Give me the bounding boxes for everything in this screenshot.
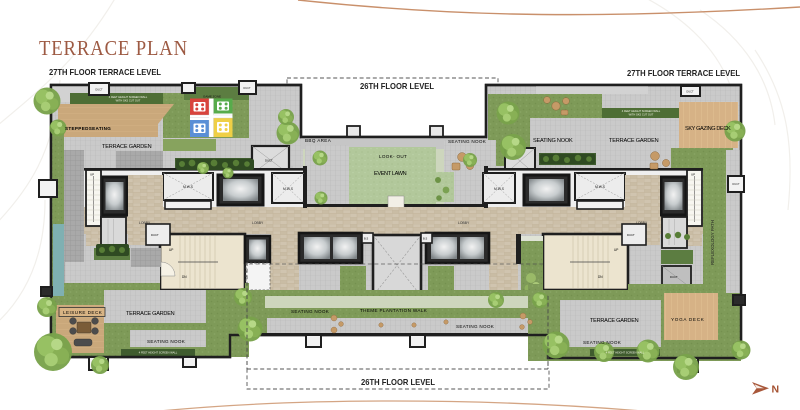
svg-text:27TH FLOOR TERRACE LEVEL: 27TH FLOOR TERRACE LEVEL: [627, 69, 740, 78]
svg-text:N: N: [772, 384, 780, 396]
svg-text:SEATING NOOK: SEATING NOOK: [456, 324, 495, 329]
svg-text:26TH FLOOR LEVEL: 26TH FLOOR LEVEL: [361, 377, 435, 387]
svg-text:LOBBY: LOBBY: [139, 221, 151, 225]
svg-text:SEATING NOOK: SEATING NOOK: [583, 340, 622, 345]
svg-text:TERRACE GARDEN: TERRACE GARDEN: [126, 311, 175, 317]
svg-text:M.W.S: M.W.S: [494, 187, 505, 191]
svg-text:YOGA DECK: YOGA DECK: [671, 317, 705, 322]
svg-text:LOBBY: LOBBY: [636, 221, 648, 225]
svg-text:REFLEXOLOGY PATH: REFLEXOLOGY PATH: [710, 220, 715, 265]
svg-text:26TH FLOOR LEVEL: 26TH FLOOR LEVEL: [360, 81, 434, 91]
svg-text:DUCT: DUCT: [732, 182, 740, 186]
svg-text:TERRACE PLAN: TERRACE PLAN: [39, 36, 188, 60]
svg-text:27TH FLOOR TERRACE LEVEL: 27TH FLOOR TERRACE LEVEL: [49, 68, 161, 77]
svg-text:STEPPEDSEATING: STEPPEDSEATING: [65, 126, 111, 131]
svg-text:B.S: B.S: [423, 237, 427, 241]
svg-text:DUCT: DUCT: [627, 233, 635, 237]
svg-text:M.W.S: M.W.S: [183, 185, 194, 189]
svg-text:4 FEET HEIGHT SCREEN WALL: 4 FEET HEIGHT SCREEN WALL: [622, 109, 661, 113]
svg-text:TERRACE GARDEN: TERRACE GARDEN: [102, 144, 152, 150]
svg-text:DN: DN: [182, 275, 187, 279]
svg-text:4 FEET HEIGHT SCREEN WALL: 4 FEET HEIGHT SCREEN WALL: [109, 95, 148, 99]
svg-text:SEATING NOOK: SEATING NOOK: [533, 138, 573, 144]
svg-text:B.S: B.S: [364, 237, 368, 241]
svg-text:WITH SKS CUT OUT: WITH SKS CUT OUT: [116, 99, 141, 103]
svg-text:M.W.S: M.W.S: [283, 187, 294, 191]
svg-text:DUCT: DUCT: [95, 88, 103, 92]
svg-text:DUCT: DUCT: [686, 90, 694, 94]
svg-text:SEATING NOOK: SEATING NOOK: [448, 139, 487, 144]
svg-text:UP: UP: [614, 248, 618, 252]
svg-text:M.W.S: M.W.S: [595, 185, 606, 189]
svg-text:UP: UP: [691, 173, 695, 177]
svg-text:SEATING NOOK: SEATING NOOK: [291, 309, 330, 314]
svg-text:TERRACE GARDEN: TERRACE GARDEN: [590, 318, 639, 324]
svg-text:DUCT: DUCT: [243, 86, 251, 90]
svg-text:LEISURE DECK: LEISURE DECK: [63, 310, 103, 315]
svg-text:SEATING NOOK: SEATING NOOK: [147, 339, 186, 344]
svg-text:EVENT LAWN: EVENT LAWN: [374, 171, 407, 177]
svg-text:UP: UP: [169, 248, 173, 252]
svg-text:DUCT: DUCT: [265, 159, 273, 163]
svg-text:THEME PLANTATION WALK: THEME PLANTATION WALK: [360, 308, 428, 313]
svg-text:DUCT: DUCT: [151, 233, 159, 237]
svg-text:LOBBY: LOBBY: [252, 221, 264, 225]
svg-text:GAME ZONE: GAME ZONE: [203, 95, 221, 99]
svg-text:DN: DN: [598, 275, 603, 279]
svg-text:4 FEET HEIGHT SCREEN WALL: 4 FEET HEIGHT SCREEN WALL: [606, 351, 645, 355]
svg-text:LOBBY: LOBBY: [458, 221, 470, 225]
svg-text:4 FEET HEIGHT SCREEN WALL: 4 FEET HEIGHT SCREEN WALL: [139, 351, 178, 355]
svg-text:SKY GAZING DECK: SKY GAZING DECK: [685, 126, 731, 132]
svg-text:UP: UP: [90, 173, 94, 177]
svg-text:BBQ AREA: BBQ AREA: [305, 138, 332, 143]
svg-text:LOOK- OUT: LOOK- OUT: [379, 154, 407, 159]
svg-text:TERRACE GARDEN: TERRACE GARDEN: [609, 138, 659, 144]
svg-text:WITH SKS CUT OUT: WITH SKS CUT OUT: [629, 113, 654, 117]
svg-text:DUCT: DUCT: [670, 275, 678, 279]
